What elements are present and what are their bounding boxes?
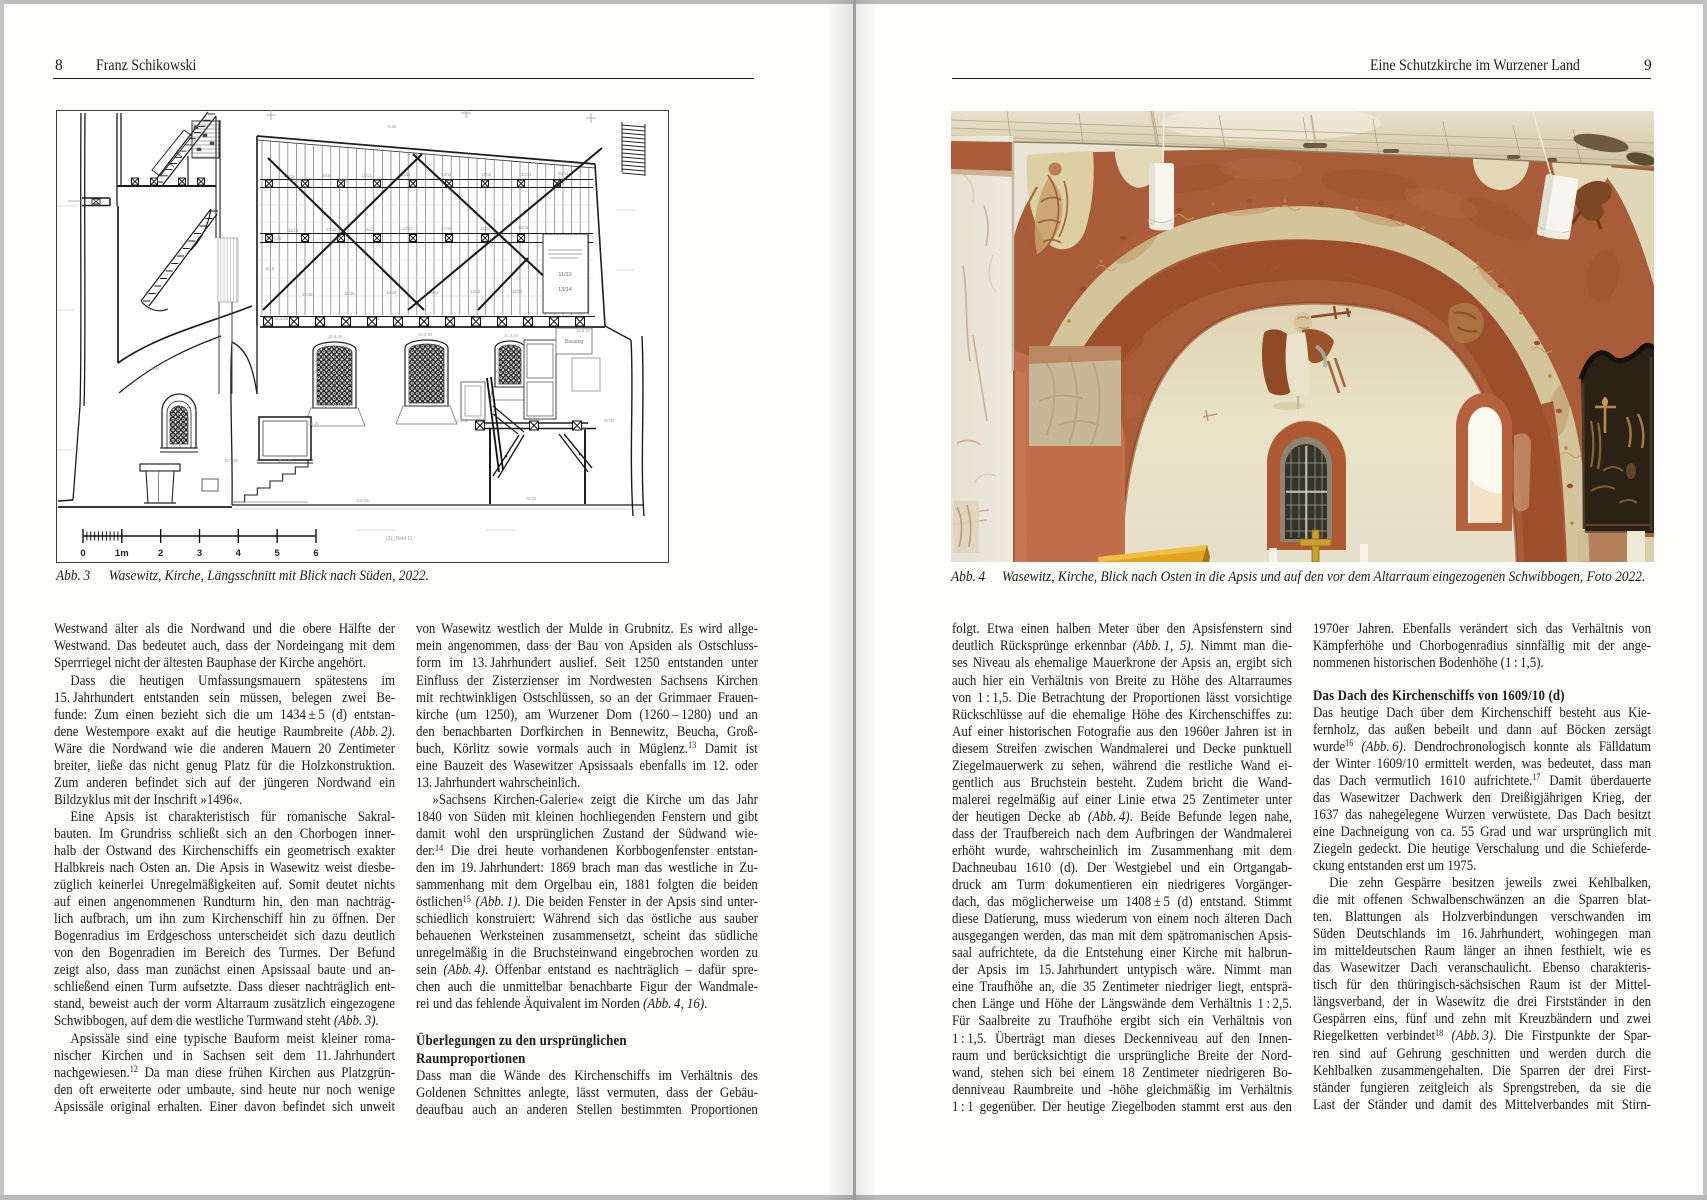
svg-text:105.36: 105.36	[306, 421, 319, 426]
svg-text:17/13: 17/13	[361, 173, 372, 178]
svg-text:2: 2	[158, 548, 163, 559]
svg-text:11/14: 11/14	[288, 228, 299, 233]
svg-text:0: 0	[80, 548, 85, 559]
svg-text:17/16: 17/16	[338, 178, 349, 183]
svg-text:13/14: 13/14	[481, 172, 492, 177]
svg-text:4.1.72: 4.1.72	[186, 406, 198, 411]
svg-text:17/18: 17/18	[302, 292, 313, 297]
svg-text:(2L_Bind 1): (2L_Bind 1)	[386, 536, 412, 542]
svg-text:8/19: 8/19	[266, 266, 275, 271]
svg-text:3: 3	[197, 548, 202, 559]
svg-text:17/14: 17/14	[441, 226, 452, 231]
svg-text:13/14: 13/14	[558, 287, 572, 293]
svg-text:10.4.40: 10.4.40	[418, 332, 433, 337]
svg-text:15/14: 15/14	[558, 171, 569, 176]
svg-text:2.84: 2.84	[151, 366, 160, 371]
svg-text:44.1.32: 44.1.32	[454, 418, 469, 423]
svg-text:1m: 1m	[115, 548, 129, 559]
svg-text:12/13: 12/13	[402, 226, 413, 231]
svg-text:12/15: 12/15	[326, 227, 337, 232]
svg-text:102.86: 102.86	[356, 498, 369, 503]
svg-text:15/18: 15/18	[386, 290, 397, 295]
svg-text:37/31: 37/31	[604, 418, 615, 423]
svg-text:11/13: 11/13	[558, 272, 571, 278]
svg-text:15/22: 15/22	[292, 178, 303, 183]
svg-text:13/15: 13/15	[470, 289, 481, 294]
svg-text:10.4.44: 10.4.44	[504, 333, 519, 338]
svg-text:6: 6	[313, 548, 318, 559]
svg-text:78.22: 78.22	[526, 496, 537, 501]
svg-text:14/13: 14/13	[518, 225, 529, 230]
svg-text:16.0.46: 16.0.46	[278, 458, 293, 463]
svg-text:4: 4	[236, 548, 242, 559]
svg-text:10.5.22: 10.5.22	[576, 328, 591, 333]
svg-text:20/20: 20/20	[576, 426, 587, 431]
svg-text:12/14: 12/14	[521, 172, 532, 177]
svg-text:9/15: 9/15	[322, 173, 331, 178]
svg-text:+4.65: +4.65	[386, 124, 397, 129]
svg-text:15/13: 15/13	[512, 289, 523, 294]
svg-text:5: 5	[275, 548, 281, 559]
svg-text:15/13: 15/13	[364, 227, 375, 232]
svg-text:30.1.55: 30.1.55	[224, 458, 239, 463]
svg-text:13/13: 13/13	[441, 172, 452, 177]
svg-text:10.4.26: 10.4.26	[328, 334, 343, 339]
svg-text:4.4.52: 4.4.52	[270, 236, 282, 241]
svg-text:13/15: 13/15	[344, 291, 355, 296]
svg-text:Bausteg: Bausteg	[565, 339, 584, 345]
